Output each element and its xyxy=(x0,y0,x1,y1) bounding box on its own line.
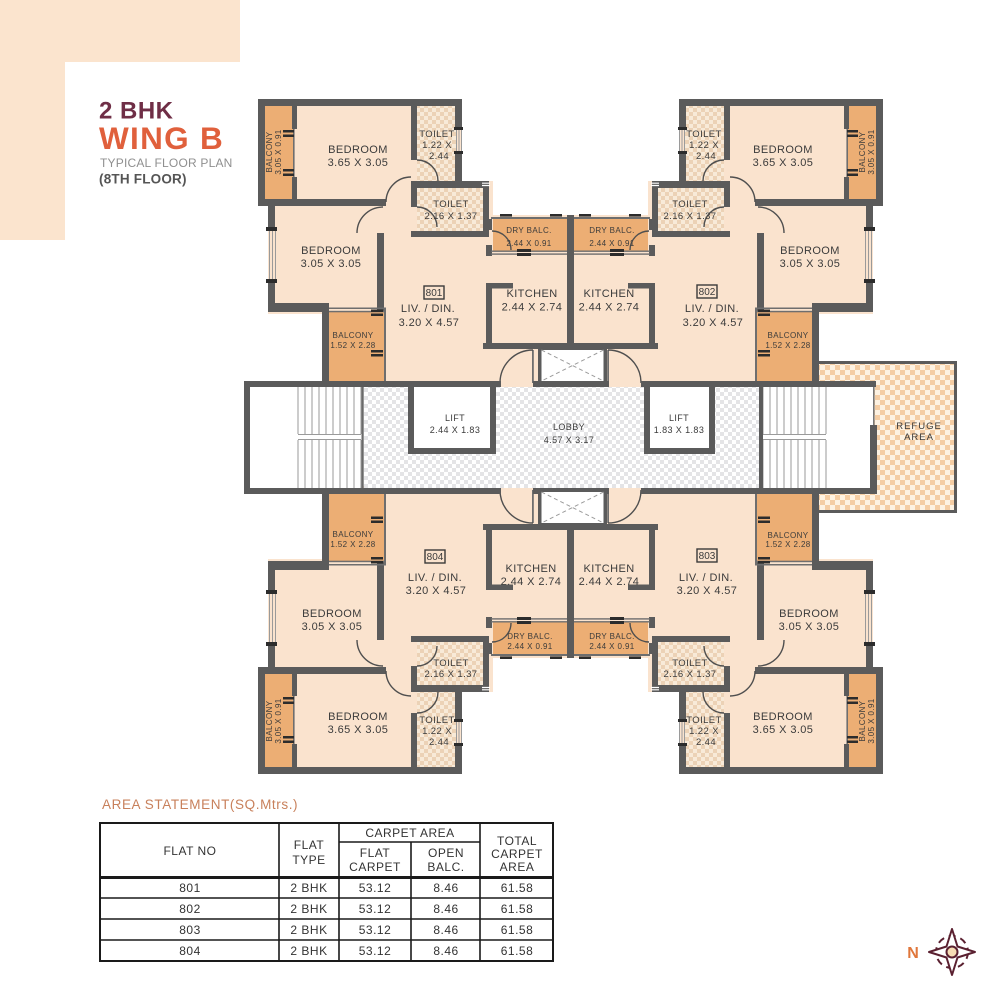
svg-text:3.05 X 3.05: 3.05 X 3.05 xyxy=(302,621,363,633)
svg-text:BALCONY: BALCONY xyxy=(767,531,808,540)
svg-text:2.44 X 2.74: 2.44 X 2.74 xyxy=(501,576,562,588)
svg-text:BEDROOM: BEDROOM xyxy=(301,245,361,257)
svg-text:1.52 X 2.28: 1.52 X 2.28 xyxy=(330,540,375,549)
svg-text:1.52 X 2.28: 1.52 X 2.28 xyxy=(765,341,810,350)
svg-text:2.44 X 2.74: 2.44 X 2.74 xyxy=(502,302,563,314)
svg-text:3.05 X 0.91: 3.05 X 0.91 xyxy=(274,698,283,743)
svg-text:DRY BALC.: DRY BALC. xyxy=(589,226,635,235)
svg-text:2.44 X 1.83: 2.44 X 1.83 xyxy=(430,425,480,435)
svg-text:LIV. / DIN.: LIV. / DIN. xyxy=(679,572,733,584)
svg-text:2.16 X 1.37: 2.16 X 1.37 xyxy=(425,669,478,680)
svg-text:3.05 X 0.91: 3.05 X 0.91 xyxy=(867,129,876,174)
svg-text:TOILET: TOILET xyxy=(672,199,707,210)
svg-text:61.58: 61.58 xyxy=(501,923,534,937)
svg-text:BEDROOM: BEDROOM xyxy=(753,711,813,723)
svg-text:KITCHEN: KITCHEN xyxy=(583,563,634,575)
svg-text:3.05 X 0.91: 3.05 X 0.91 xyxy=(867,698,876,743)
svg-text:BALCONY: BALCONY xyxy=(767,331,808,340)
svg-text:TOILET: TOILET xyxy=(672,658,707,669)
svg-text:3.05 X 3.05: 3.05 X 3.05 xyxy=(780,258,841,270)
svg-text:53.12: 53.12 xyxy=(359,881,392,895)
svg-text:BEDROOM: BEDROOM xyxy=(753,144,813,156)
svg-text:61.58: 61.58 xyxy=(501,902,534,916)
svg-text:AREA STATEMENT(SQ.Mtrs.): AREA STATEMENT(SQ.Mtrs.) xyxy=(102,797,298,812)
svg-text:BEDROOM: BEDROOM xyxy=(328,144,388,156)
svg-text:803: 803 xyxy=(699,551,716,562)
svg-text:801: 801 xyxy=(426,288,443,299)
svg-text:804: 804 xyxy=(427,552,444,563)
svg-text:LIFT: LIFT xyxy=(669,413,689,423)
svg-text:LIFT: LIFT xyxy=(445,413,465,423)
svg-text:2.16 X 1.37: 2.16 X 1.37 xyxy=(425,211,478,222)
svg-text:2.44 X 0.91: 2.44 X 0.91 xyxy=(507,642,552,651)
svg-text:8.46: 8.46 xyxy=(433,944,458,958)
svg-text:BALCONY: BALCONY xyxy=(265,131,274,172)
svg-text:FLAT NO: FLAT NO xyxy=(163,844,216,858)
svg-text:FLAT: FLAT xyxy=(360,846,391,860)
svg-text:2.16 X 1.37: 2.16 X 1.37 xyxy=(664,669,717,680)
svg-text:LIV. / DIN.: LIV. / DIN. xyxy=(408,572,462,584)
svg-text:OPEN: OPEN xyxy=(428,846,464,860)
svg-text:TOILET: TOILET xyxy=(686,129,721,140)
svg-text:8.46: 8.46 xyxy=(433,881,458,895)
svg-text:3.05 X 3.05: 3.05 X 3.05 xyxy=(301,258,362,270)
svg-text:TYPE: TYPE xyxy=(292,853,325,867)
svg-text:3.65 X 3.05: 3.65 X 3.05 xyxy=(328,157,389,169)
svg-text:BALCONY: BALCONY xyxy=(265,700,274,741)
svg-text:TOILET: TOILET xyxy=(433,199,468,210)
svg-text:4.57 X 3.17: 4.57 X 3.17 xyxy=(544,435,594,445)
svg-text:1.22 X: 1.22 X xyxy=(422,726,452,737)
svg-text:2.44: 2.44 xyxy=(696,151,716,162)
svg-text:3.20 X 4.57: 3.20 X 4.57 xyxy=(683,317,744,329)
svg-text:1.83 X 1.83: 1.83 X 1.83 xyxy=(654,425,704,435)
svg-text:BEDROOM: BEDROOM xyxy=(328,711,388,723)
svg-text:61.58: 61.58 xyxy=(501,944,534,958)
svg-text:53.12: 53.12 xyxy=(359,902,392,916)
svg-text:TOTAL: TOTAL xyxy=(497,834,537,848)
svg-text:801: 801 xyxy=(179,881,201,895)
svg-text:1.22 X: 1.22 X xyxy=(689,726,719,737)
svg-text:DRY BALC.: DRY BALC. xyxy=(506,226,552,235)
svg-text:CARPET: CARPET xyxy=(349,860,401,874)
svg-text:3.20 X 4.57: 3.20 X 4.57 xyxy=(406,585,467,597)
svg-text:LIV. / DIN.: LIV. / DIN. xyxy=(685,303,739,315)
svg-text:1.52 X 2.28: 1.52 X 2.28 xyxy=(765,540,810,549)
svg-text:3.20 X 4.57: 3.20 X 4.57 xyxy=(399,317,460,329)
svg-text:BALCONY: BALCONY xyxy=(858,131,867,172)
svg-text:2.44: 2.44 xyxy=(429,737,449,748)
svg-text:BALC.: BALC. xyxy=(427,860,464,874)
svg-text:KITCHEN: KITCHEN xyxy=(506,288,557,300)
svg-text:CARPET: CARPET xyxy=(491,847,543,861)
svg-text:2.44: 2.44 xyxy=(429,151,449,162)
svg-text:2 BHK: 2 BHK xyxy=(290,944,327,958)
svg-text:TYPICAL FLOOR PLAN: TYPICAL FLOOR PLAN xyxy=(100,156,233,170)
svg-text:KITCHEN: KITCHEN xyxy=(583,288,634,300)
svg-text:2 BHK: 2 BHK xyxy=(290,881,327,895)
svg-text:2 BHK: 2 BHK xyxy=(290,902,327,916)
svg-text:BEDROOM: BEDROOM xyxy=(780,245,840,257)
svg-text:BEDROOM: BEDROOM xyxy=(779,608,839,620)
svg-text:2.44 X 0.91: 2.44 X 0.91 xyxy=(589,642,634,651)
svg-text:3.05 X 3.05: 3.05 X 3.05 xyxy=(779,621,840,633)
svg-text:804: 804 xyxy=(179,944,201,958)
svg-text:803: 803 xyxy=(179,923,201,937)
svg-text:802: 802 xyxy=(179,902,201,916)
svg-text:TOILET: TOILET xyxy=(419,715,454,726)
svg-text:(8TH FLOOR): (8TH FLOOR) xyxy=(99,172,187,187)
svg-text:WING B: WING B xyxy=(99,120,224,156)
svg-text:3.65 X 3.05: 3.65 X 3.05 xyxy=(328,724,389,736)
svg-text:1.22 X: 1.22 X xyxy=(689,140,719,151)
svg-text:3.20 X 4.57: 3.20 X 4.57 xyxy=(677,585,738,597)
svg-text:BALCONY: BALCONY xyxy=(858,700,867,741)
svg-text:TOILET: TOILET xyxy=(433,658,468,669)
svg-text:802: 802 xyxy=(699,287,716,298)
svg-text:TOILET: TOILET xyxy=(419,129,454,140)
svg-text:BALCONY: BALCONY xyxy=(332,331,373,340)
svg-text:53.12: 53.12 xyxy=(359,923,392,937)
svg-text:DRY BALC.: DRY BALC. xyxy=(507,632,553,641)
svg-text:LOBBY: LOBBY xyxy=(553,422,585,432)
svg-text:DRY BALC.: DRY BALC. xyxy=(589,632,635,641)
svg-text:2.44 X 0.91: 2.44 X 0.91 xyxy=(506,239,551,248)
svg-text:2.44 X 2.74: 2.44 X 2.74 xyxy=(579,302,640,314)
svg-text:AREA: AREA xyxy=(500,860,535,874)
svg-text:1.22 X: 1.22 X xyxy=(422,140,452,151)
svg-text:2.44 X 0.91: 2.44 X 0.91 xyxy=(589,239,634,248)
svg-text:3.65 X 3.05: 3.65 X 3.05 xyxy=(753,724,814,736)
svg-text:2.44: 2.44 xyxy=(696,737,716,748)
svg-text:BEDROOM: BEDROOM xyxy=(302,608,362,620)
svg-text:LIV. / DIN.: LIV. / DIN. xyxy=(401,303,455,315)
svg-text:8.46: 8.46 xyxy=(433,923,458,937)
svg-text:AREA: AREA xyxy=(904,432,934,443)
svg-text:1.52 X 2.28: 1.52 X 2.28 xyxy=(330,341,375,350)
svg-text:REFUGE: REFUGE xyxy=(896,421,942,432)
svg-text:N: N xyxy=(907,945,919,962)
svg-text:3.05 X 0.91: 3.05 X 0.91 xyxy=(274,129,283,174)
svg-text:2 BHK: 2 BHK xyxy=(290,923,327,937)
svg-text:53.12: 53.12 xyxy=(359,944,392,958)
svg-text:61.58: 61.58 xyxy=(501,881,534,895)
svg-text:2.44 X 2.74: 2.44 X 2.74 xyxy=(579,576,640,588)
svg-text:8.46: 8.46 xyxy=(433,902,458,916)
svg-text:BALCONY: BALCONY xyxy=(332,530,373,539)
svg-text:FLAT: FLAT xyxy=(294,838,325,852)
svg-text:3.65 X 3.05: 3.65 X 3.05 xyxy=(753,157,814,169)
svg-text:KITCHEN: KITCHEN xyxy=(505,563,556,575)
svg-text:TOILET: TOILET xyxy=(686,715,721,726)
svg-text:2.16 X 1.37: 2.16 X 1.37 xyxy=(664,211,717,222)
svg-text:CARPET AREA: CARPET AREA xyxy=(365,826,454,840)
